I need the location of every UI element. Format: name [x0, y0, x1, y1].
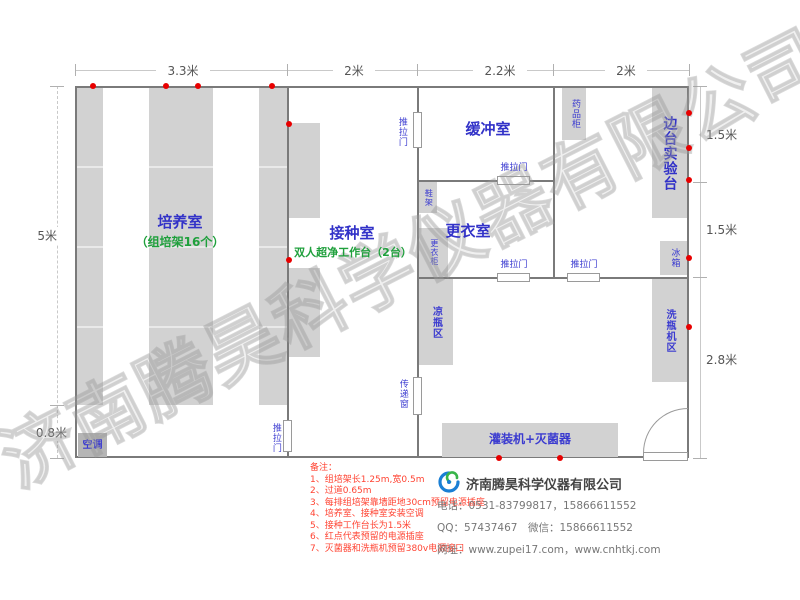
dim-tick: [689, 64, 690, 76]
power-socket-dot: [686, 177, 692, 183]
wall-culture-inoculation: [287, 86, 289, 458]
inoculation-room-label: 接种室: [302, 222, 402, 243]
power-socket-dot: [269, 83, 275, 89]
filler-sterilizer-label: 灌装机+灭菌器: [489, 433, 571, 446]
dim-tick: [693, 86, 707, 87]
left-dimension-line: [57, 86, 58, 458]
medicine-cabinet-box: 药品柜: [562, 88, 586, 140]
cooling-area-label: 凉瓶区: [431, 306, 442, 339]
sliding-door-label: 推拉门: [564, 261, 604, 271]
power-socket-dot: [163, 83, 169, 89]
inoculation-room-sublabel: 双人超净工作台（2台）: [282, 244, 424, 260]
company-phone: 电话：0531-83799817，15866611552: [437, 498, 636, 513]
locker-label: 更衣柜: [429, 239, 438, 266]
dim-right-1: 1.5米: [703, 126, 740, 143]
dim-tick: [693, 277, 707, 278]
sliding-door-label: 推拉门: [270, 417, 280, 459]
power-socket-dot: [90, 83, 96, 89]
dim-tick: [417, 64, 418, 76]
sliding-door-label: 推拉门: [494, 261, 534, 271]
sliding-door-sidebench-south: [567, 273, 600, 282]
sliding-door-culture-inoculation: [283, 420, 292, 452]
changing-room-label: 更衣室: [420, 220, 516, 241]
side-bench-label: 边台实验台: [660, 116, 680, 191]
sliding-door-buffer-west: [413, 112, 422, 148]
shoe-rack-label: 鞋架: [424, 189, 433, 207]
company-website: 网址：www.zupei17.com，www.cnhtkj.com: [437, 542, 661, 557]
power-socket-dot: [496, 455, 502, 461]
culture-rack-column-1: [77, 88, 103, 405]
dim-tick: [693, 458, 707, 459]
dim-left-1: 5米: [26, 227, 60, 244]
bottle-washer-area-box: 洗瓶机区: [652, 279, 687, 382]
sliding-door-label: 推拉门: [494, 164, 534, 174]
power-socket-dot: [286, 121, 292, 127]
right-dimension-line: [700, 86, 701, 458]
dim-top-4: 2米: [605, 62, 647, 79]
culture-room-label: 培养室: [130, 211, 230, 232]
floor-plan-canvas: 济南腾昊科学仪器有限公司 3.3米 2米 2.2米 2米 5米 0.8米 1.5…: [0, 0, 800, 600]
bottle-washer-area-label: 洗瓶机区: [664, 309, 675, 353]
cooling-area-box: 凉瓶区: [419, 279, 453, 365]
dim-left-2: 0.8米: [22, 424, 70, 441]
culture-room-sublabel: （组培架16个）: [116, 233, 244, 250]
dim-tick: [75, 64, 76, 76]
power-socket-dot: [686, 110, 692, 116]
transfer-window-opening: [413, 377, 422, 415]
dim-top-3: 2.2米: [473, 62, 527, 79]
dim-tick: [693, 182, 707, 183]
sliding-door-label: 推拉门: [396, 111, 406, 153]
dim-top-1: 3.3米: [156, 62, 210, 79]
medicine-cabinet-label: 药品柜: [569, 99, 579, 129]
entrance-door-leaf: [643, 452, 688, 461]
power-socket-dot: [195, 83, 201, 89]
dim-right-3: 2.8米: [703, 351, 740, 368]
clean-bench-1: [289, 123, 320, 218]
power-socket-dot: [686, 324, 692, 330]
dim-tick: [50, 458, 64, 459]
power-socket-dot: [686, 255, 692, 261]
filler-sterilizer-box: 灌装机+灭菌器: [442, 423, 618, 457]
company-logo-icon: [437, 470, 461, 498]
transfer-window-label: 传递窗: [397, 372, 407, 416]
fridge-box: 冰箱: [660, 241, 687, 275]
dim-top-2: 2米: [333, 62, 375, 79]
buffer-room-label: 缓冲室: [440, 118, 536, 139]
dim-tick: [50, 86, 64, 87]
sliding-door-buffer-changing: [497, 176, 530, 185]
air-conditioner-box: 空调: [78, 433, 107, 457]
power-socket-dot: [686, 145, 692, 151]
shoe-rack-box: 鞋架: [419, 182, 437, 213]
company-qq-wechat: QQ：57437467 微信：15866611552: [437, 520, 633, 535]
fridge-label: 冰箱: [669, 248, 679, 268]
wall-buffer-changing: [417, 180, 553, 182]
sliding-door-changing-south: [497, 273, 530, 282]
dim-tick: [50, 405, 64, 406]
power-socket-dot: [557, 455, 563, 461]
dim-tick: [553, 64, 554, 76]
wall-buffer-sidebench: [553, 86, 555, 277]
dim-right-2: 1.5米: [703, 221, 740, 238]
side-bench-box: 边台实验台: [652, 88, 687, 218]
wall-changing-south: [417, 277, 689, 279]
air-conditioner-label: 空调: [83, 440, 103, 451]
clean-bench-2: [289, 268, 320, 357]
company-name: 济南腾昊科学仪器有限公司: [466, 474, 622, 493]
dim-tick: [287, 64, 288, 76]
